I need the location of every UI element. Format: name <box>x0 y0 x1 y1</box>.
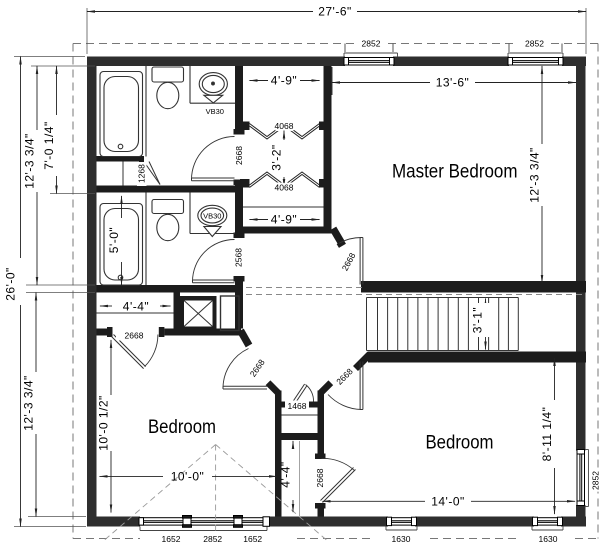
svg-text:12'-3 3/4": 12'-3 3/4" <box>23 133 37 189</box>
svg-text:1630: 1630 <box>539 534 558 544</box>
svg-text:4'-4": 4'-4" <box>123 300 149 314</box>
svg-text:4068: 4068 <box>275 121 294 131</box>
svg-text:5'-0": 5'-0" <box>107 227 121 253</box>
svg-text:2852: 2852 <box>362 39 381 49</box>
svg-text:26'-0": 26'-0" <box>4 267 18 301</box>
svg-text:4'-9": 4'-9" <box>271 213 297 227</box>
svg-text:4'-9": 4'-9" <box>271 74 297 88</box>
svg-text:Master Bedroom: Master Bedroom <box>392 161 518 183</box>
svg-text:12'-3 3/4": 12'-3 3/4" <box>22 375 36 431</box>
svg-text:1630: 1630 <box>392 534 411 544</box>
svg-text:8'-11 1/4": 8'-11 1/4" <box>540 407 554 462</box>
svg-text:VB30: VB30 <box>203 212 221 221</box>
svg-text:27'-6": 27'-6" <box>318 5 352 19</box>
svg-text:4'-4": 4'-4" <box>279 461 293 487</box>
svg-text:2852: 2852 <box>591 471 601 490</box>
svg-text:14'-0": 14'-0" <box>431 494 465 508</box>
svg-text:2852: 2852 <box>525 39 544 49</box>
svg-text:1468: 1468 <box>288 401 307 411</box>
svg-text:1652: 1652 <box>162 534 181 544</box>
svg-text:3'-1": 3'-1" <box>471 307 485 333</box>
svg-text:7'-0 1/4": 7'-0 1/4" <box>42 121 56 169</box>
svg-text:4068: 4068 <box>275 183 294 193</box>
svg-text:3'-2": 3'-2" <box>270 144 284 170</box>
svg-text:10'-0 1/2": 10'-0 1/2" <box>97 395 111 451</box>
svg-text:10'-0": 10'-0" <box>171 469 205 483</box>
svg-text:1268: 1268 <box>137 164 147 183</box>
svg-text:Bedroom: Bedroom <box>148 416 216 438</box>
svg-text:Bedroom: Bedroom <box>426 432 494 454</box>
svg-text:12'-3 3/4": 12'-3 3/4" <box>528 147 542 203</box>
svg-text:13'-6": 13'-6" <box>436 76 470 90</box>
svg-text:2852: 2852 <box>203 534 222 544</box>
svg-text:1652: 1652 <box>243 534 262 544</box>
svg-text:VB30: VB30 <box>206 107 224 116</box>
svg-text:2568: 2568 <box>234 248 244 267</box>
svg-text:2668: 2668 <box>315 468 325 487</box>
svg-text:2668: 2668 <box>234 146 244 165</box>
svg-text:2668: 2668 <box>125 331 144 341</box>
